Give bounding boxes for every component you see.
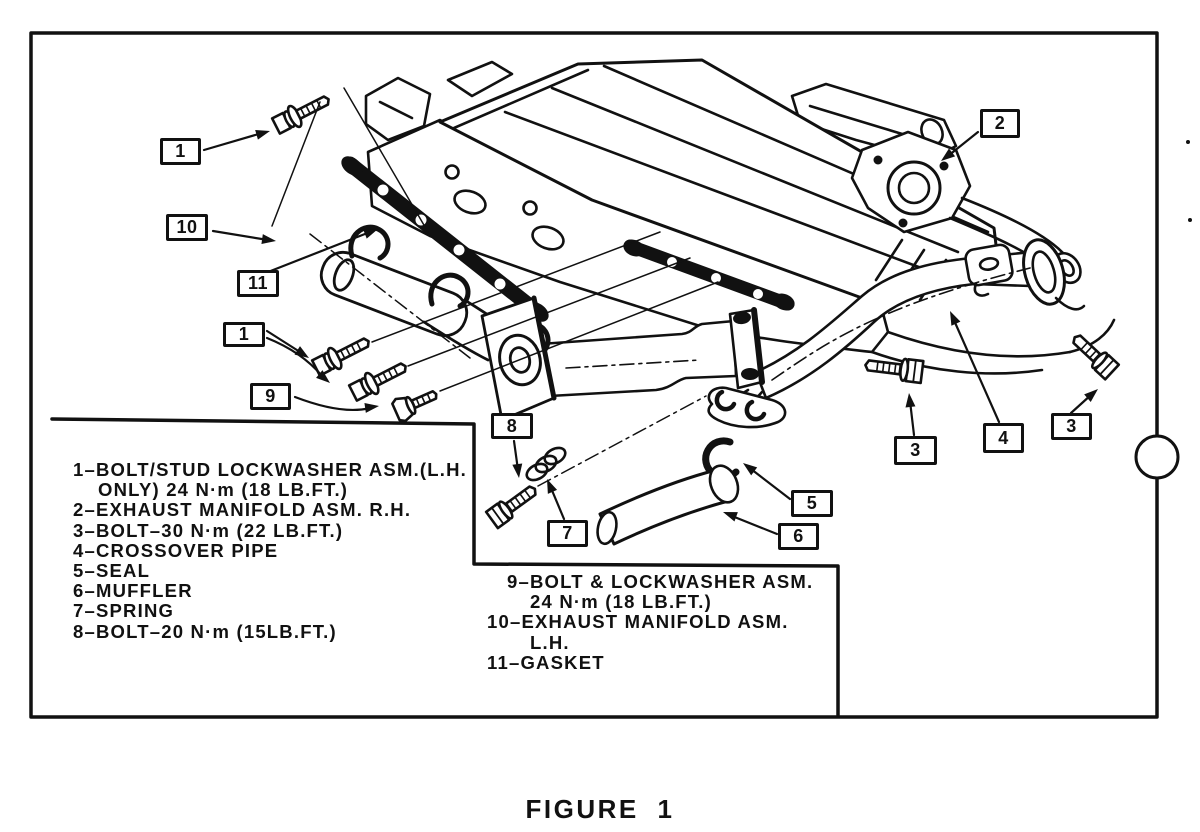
legend-line: L.H. <box>487 633 813 653</box>
legend-line: ONLY) 24 N·m (18 LB.FT.) <box>73 480 467 500</box>
scan-speck <box>1186 140 1192 222</box>
legend-line: 9–BOLT & LOCKWASHER ASM. <box>487 572 813 592</box>
punch-hole-circle <box>1136 436 1178 478</box>
bolt-stud-lockwasher-a <box>311 331 374 378</box>
callout-3-left: 3 <box>894 436 937 465</box>
callout-3-right: 3 <box>1051 413 1092 440</box>
bolt-3-right <box>1068 330 1119 379</box>
callout-7: 7 <box>547 520 588 547</box>
bolt-8 <box>486 481 541 528</box>
spring <box>524 445 568 484</box>
legend-line: 2–EXHAUST MANIFOLD ASM. R.H. <box>73 500 467 520</box>
legend-line: 5–SEAL <box>73 561 467 581</box>
muffler <box>595 462 743 546</box>
bolt-stud-lockwasher-b <box>348 356 411 403</box>
callout-9: 9 <box>250 383 291 410</box>
legend-line: 11–GASKET <box>487 653 813 673</box>
legend-line: 24 N·m (18 LB.FT.) <box>487 592 813 612</box>
bolt-stud-lockwasher-top <box>271 89 334 136</box>
callout-4: 4 <box>983 423 1024 453</box>
bolt-lockwasher-9 <box>391 383 441 423</box>
legend-line: 6–MUFFLER <box>73 581 467 601</box>
legend-line: 10–EXHAUST MANIFOLD ASM. <box>487 612 813 632</box>
legend-line: 8–BOLT–20 N·m (15LB.FT.) <box>73 622 467 642</box>
exploded-diagram-art <box>0 0 1200 832</box>
legend-line: 3–BOLT–30 N·m (22 LB.FT.) <box>73 521 467 541</box>
legend-items-1-8: 1–BOLT/STUD LOCKWASHER ASM.(L.H. ONLY) 2… <box>73 460 467 642</box>
legend-line: 7–SPRING <box>73 601 467 621</box>
callout-2: 2 <box>980 109 1020 138</box>
callout-1-top: 1 <box>160 138 201 165</box>
callout-11: 11 <box>237 270 279 297</box>
legend-line: 1–BOLT/STUD LOCKWASHER ASM.(L.H. <box>73 460 467 480</box>
legend-line: 4–CROSSOVER PIPE <box>73 541 467 561</box>
service-manual-figure-page: 1 10 11 1 9 8 7 5 6 2 3 4 3 1–BOLT/STUD … <box>0 0 1200 832</box>
legend-items-9-11: 9–BOLT & LOCKWASHER ASM. 24 N·m (18 LB.F… <box>487 572 813 673</box>
callout-6: 6 <box>778 523 819 550</box>
figure-caption: FIGURE 1 <box>0 794 1200 825</box>
callout-5: 5 <box>791 490 833 517</box>
callout-10: 10 <box>166 214 208 241</box>
callout-8: 8 <box>491 413 533 439</box>
callout-1-left: 1 <box>223 322 265 347</box>
